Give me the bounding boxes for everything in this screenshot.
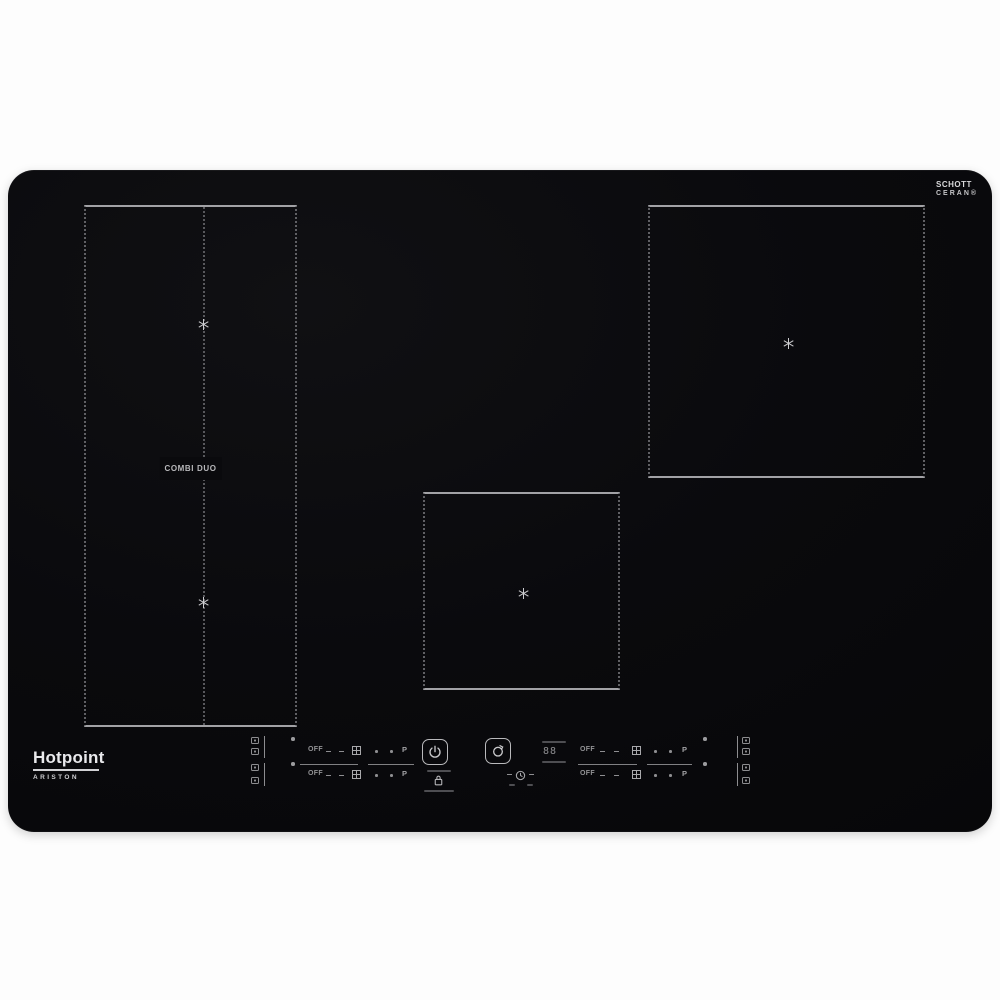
power-slider-track[interactable] bbox=[300, 764, 358, 765]
booster-grid-icon[interactable] bbox=[632, 746, 641, 755]
schott-ceran-logo: SCHOTT CERAN® bbox=[936, 180, 988, 197]
zone-map-divider bbox=[737, 736, 738, 758]
power-level-plus-key[interactable] bbox=[339, 751, 344, 752]
zone-map-icon bbox=[251, 737, 259, 744]
six-spoke-star-icon bbox=[518, 588, 529, 599]
zone-map-icon bbox=[251, 748, 259, 755]
slider-touch-dot[interactable] bbox=[669, 774, 672, 777]
zone-map-icon bbox=[742, 764, 750, 771]
power-level-plus-key[interactable] bbox=[614, 751, 619, 752]
zone-map-icon bbox=[742, 737, 750, 744]
right-zone-top-controls: OFF P bbox=[574, 744, 694, 756]
slider-touch-dot[interactable] bbox=[390, 750, 393, 753]
hotpoint-logo-underline bbox=[33, 769, 99, 771]
power-button[interactable] bbox=[422, 739, 448, 765]
six-spoke-star-icon bbox=[198, 319, 209, 330]
slider-touch-dot[interactable] bbox=[390, 774, 393, 777]
left-zone-bottom-controls: OFF P bbox=[300, 768, 418, 780]
power-level-plus-key[interactable] bbox=[339, 775, 344, 776]
off-touch-key[interactable]: OFF bbox=[580, 770, 595, 777]
zone-map-icon bbox=[251, 777, 259, 784]
power-slider-track[interactable] bbox=[578, 764, 637, 765]
left-zone-top-controls: OFF P bbox=[300, 744, 418, 756]
induction-hob-surface: SCHOTT CERAN® COMBI DUO Hotpoint ARISTON bbox=[8, 170, 992, 832]
micro-caption bbox=[542, 761, 566, 763]
slider-touch-dot[interactable] bbox=[654, 750, 657, 753]
right-zone-bottom-controls: OFF P bbox=[574, 768, 694, 780]
power-icon bbox=[427, 744, 443, 760]
zone-select-dot[interactable] bbox=[703, 762, 707, 766]
booster-grid-icon[interactable] bbox=[352, 770, 361, 779]
cooking-zone-center[interactable] bbox=[423, 492, 620, 690]
micro-caption bbox=[424, 790, 454, 792]
schott-logo-text: SCHOTT bbox=[936, 180, 988, 189]
off-touch-key[interactable]: OFF bbox=[308, 746, 323, 753]
product-photo: SCHOTT CERAN® COMBI DUO Hotpoint ARISTON bbox=[0, 0, 1000, 1000]
off-touch-key[interactable]: OFF bbox=[308, 770, 323, 777]
cooking-zone-left-flexi[interactable]: COMBI DUO bbox=[84, 205, 297, 727]
power-slider-track[interactable] bbox=[647, 764, 692, 765]
timer-clock-button[interactable] bbox=[515, 768, 526, 786]
micro-caption bbox=[542, 741, 566, 743]
combi-duo-label: COMBI DUO bbox=[159, 457, 221, 480]
slider-touch-dot[interactable] bbox=[669, 750, 672, 753]
booster-p-key[interactable]: P bbox=[402, 745, 407, 754]
pan-function-button[interactable] bbox=[485, 738, 511, 764]
timer-plus-key[interactable] bbox=[529, 774, 534, 775]
zone-select-dot[interactable] bbox=[703, 737, 707, 741]
zone-map-icon bbox=[251, 764, 259, 771]
zone-map-icon bbox=[742, 777, 750, 784]
booster-grid-icon[interactable] bbox=[352, 746, 361, 755]
timer-minus-key[interactable] bbox=[507, 774, 512, 775]
power-level-plus-key[interactable] bbox=[614, 775, 619, 776]
ceran-logo-text: CERAN® bbox=[936, 190, 988, 197]
power-slider-track[interactable] bbox=[368, 764, 414, 765]
six-spoke-star-icon bbox=[198, 597, 209, 608]
cooking-zone-right[interactable] bbox=[648, 205, 925, 478]
booster-p-key[interactable]: P bbox=[682, 745, 687, 754]
slider-touch-dot[interactable] bbox=[375, 750, 378, 753]
zone-select-dot[interactable] bbox=[291, 737, 295, 741]
hotpoint-ariston-logo: Hotpoint ARISTON bbox=[33, 748, 113, 781]
off-touch-key[interactable]: OFF bbox=[580, 746, 595, 753]
booster-grid-icon[interactable] bbox=[632, 770, 641, 779]
micro-caption bbox=[527, 784, 533, 786]
zone-map-divider bbox=[737, 763, 738, 786]
zone-select-dot[interactable] bbox=[291, 762, 295, 766]
hotpoint-logo-text: Hotpoint bbox=[33, 748, 113, 768]
power-level-minus-key[interactable] bbox=[600, 775, 605, 776]
zone-map-icon bbox=[742, 748, 750, 755]
micro-caption bbox=[509, 784, 515, 786]
six-spoke-star-icon bbox=[783, 338, 794, 349]
booster-p-key[interactable]: P bbox=[402, 769, 407, 778]
micro-caption bbox=[427, 770, 451, 772]
booster-p-key[interactable]: P bbox=[682, 769, 687, 778]
pan-function-icon bbox=[490, 743, 506, 759]
key-lock-icon bbox=[432, 774, 445, 787]
ariston-logo-text: ARISTON bbox=[33, 774, 113, 781]
zone-map-divider bbox=[264, 763, 265, 786]
power-level-minus-key[interactable] bbox=[326, 751, 331, 752]
timer-display: 88 bbox=[543, 746, 557, 757]
power-level-minus-key[interactable] bbox=[600, 751, 605, 752]
slider-touch-dot[interactable] bbox=[375, 774, 378, 777]
slider-touch-dot[interactable] bbox=[654, 774, 657, 777]
zone-map-divider bbox=[264, 736, 265, 758]
power-level-minus-key[interactable] bbox=[326, 775, 331, 776]
clock-icon bbox=[515, 770, 526, 781]
